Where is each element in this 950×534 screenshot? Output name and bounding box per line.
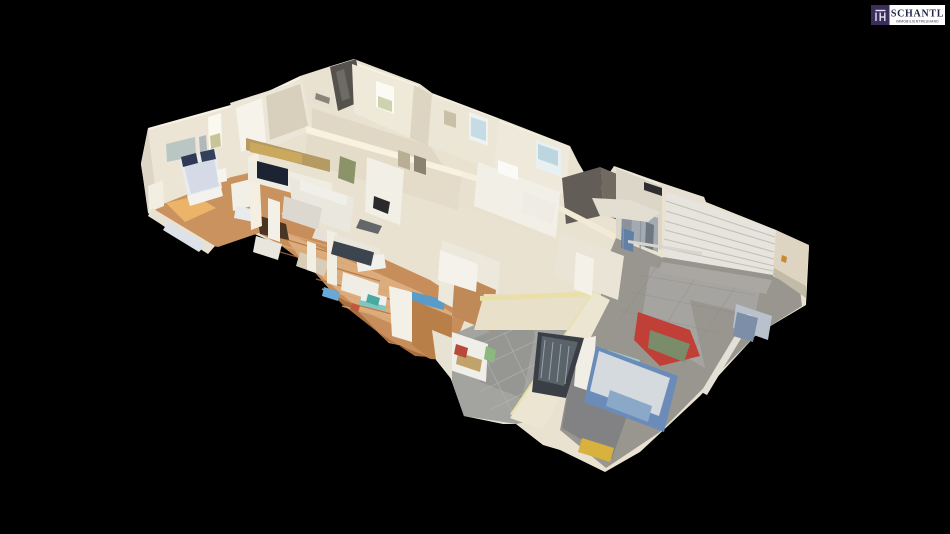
svg-text:SCHANTL: SCHANTL <box>891 9 944 20</box>
svg-text:IMMOBILIENTREUHAND: IMMOBILIENTREUHAND <box>896 20 939 24</box>
